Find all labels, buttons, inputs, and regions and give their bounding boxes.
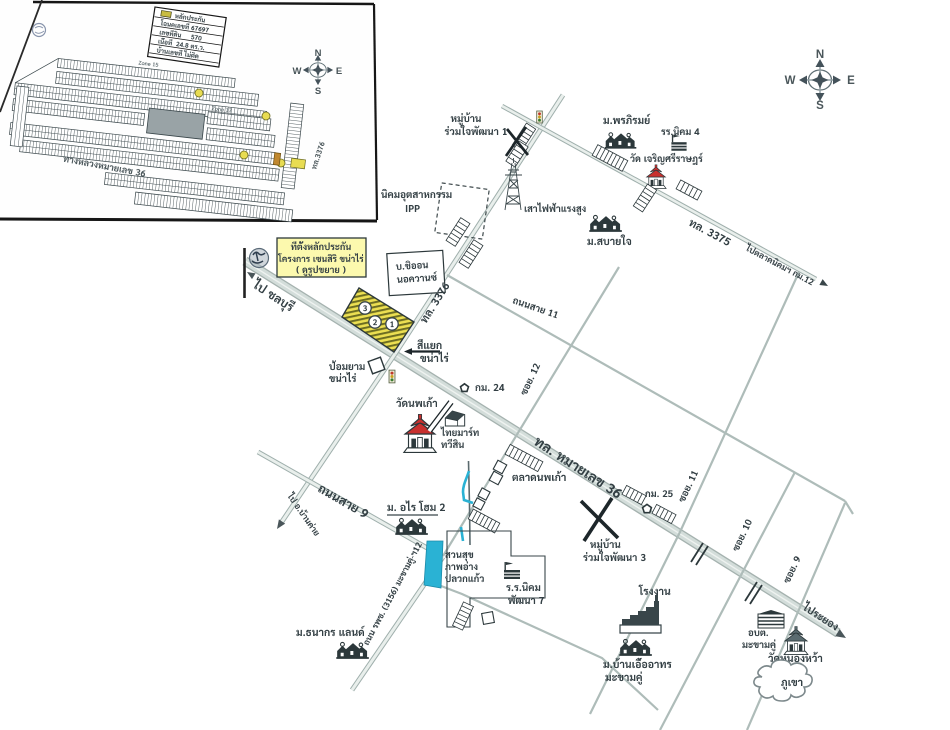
svg-text:E: E: [336, 66, 342, 77]
svg-text:N: N: [315, 48, 322, 59]
svg-text:S: S: [315, 86, 321, 97]
svg-text:W: W: [293, 66, 302, 77]
svg-text:W: W: [785, 75, 796, 87]
svg-text:N: N: [816, 49, 824, 61]
svg-text:E: E: [847, 75, 855, 87]
svg-text:S: S: [816, 100, 824, 112]
